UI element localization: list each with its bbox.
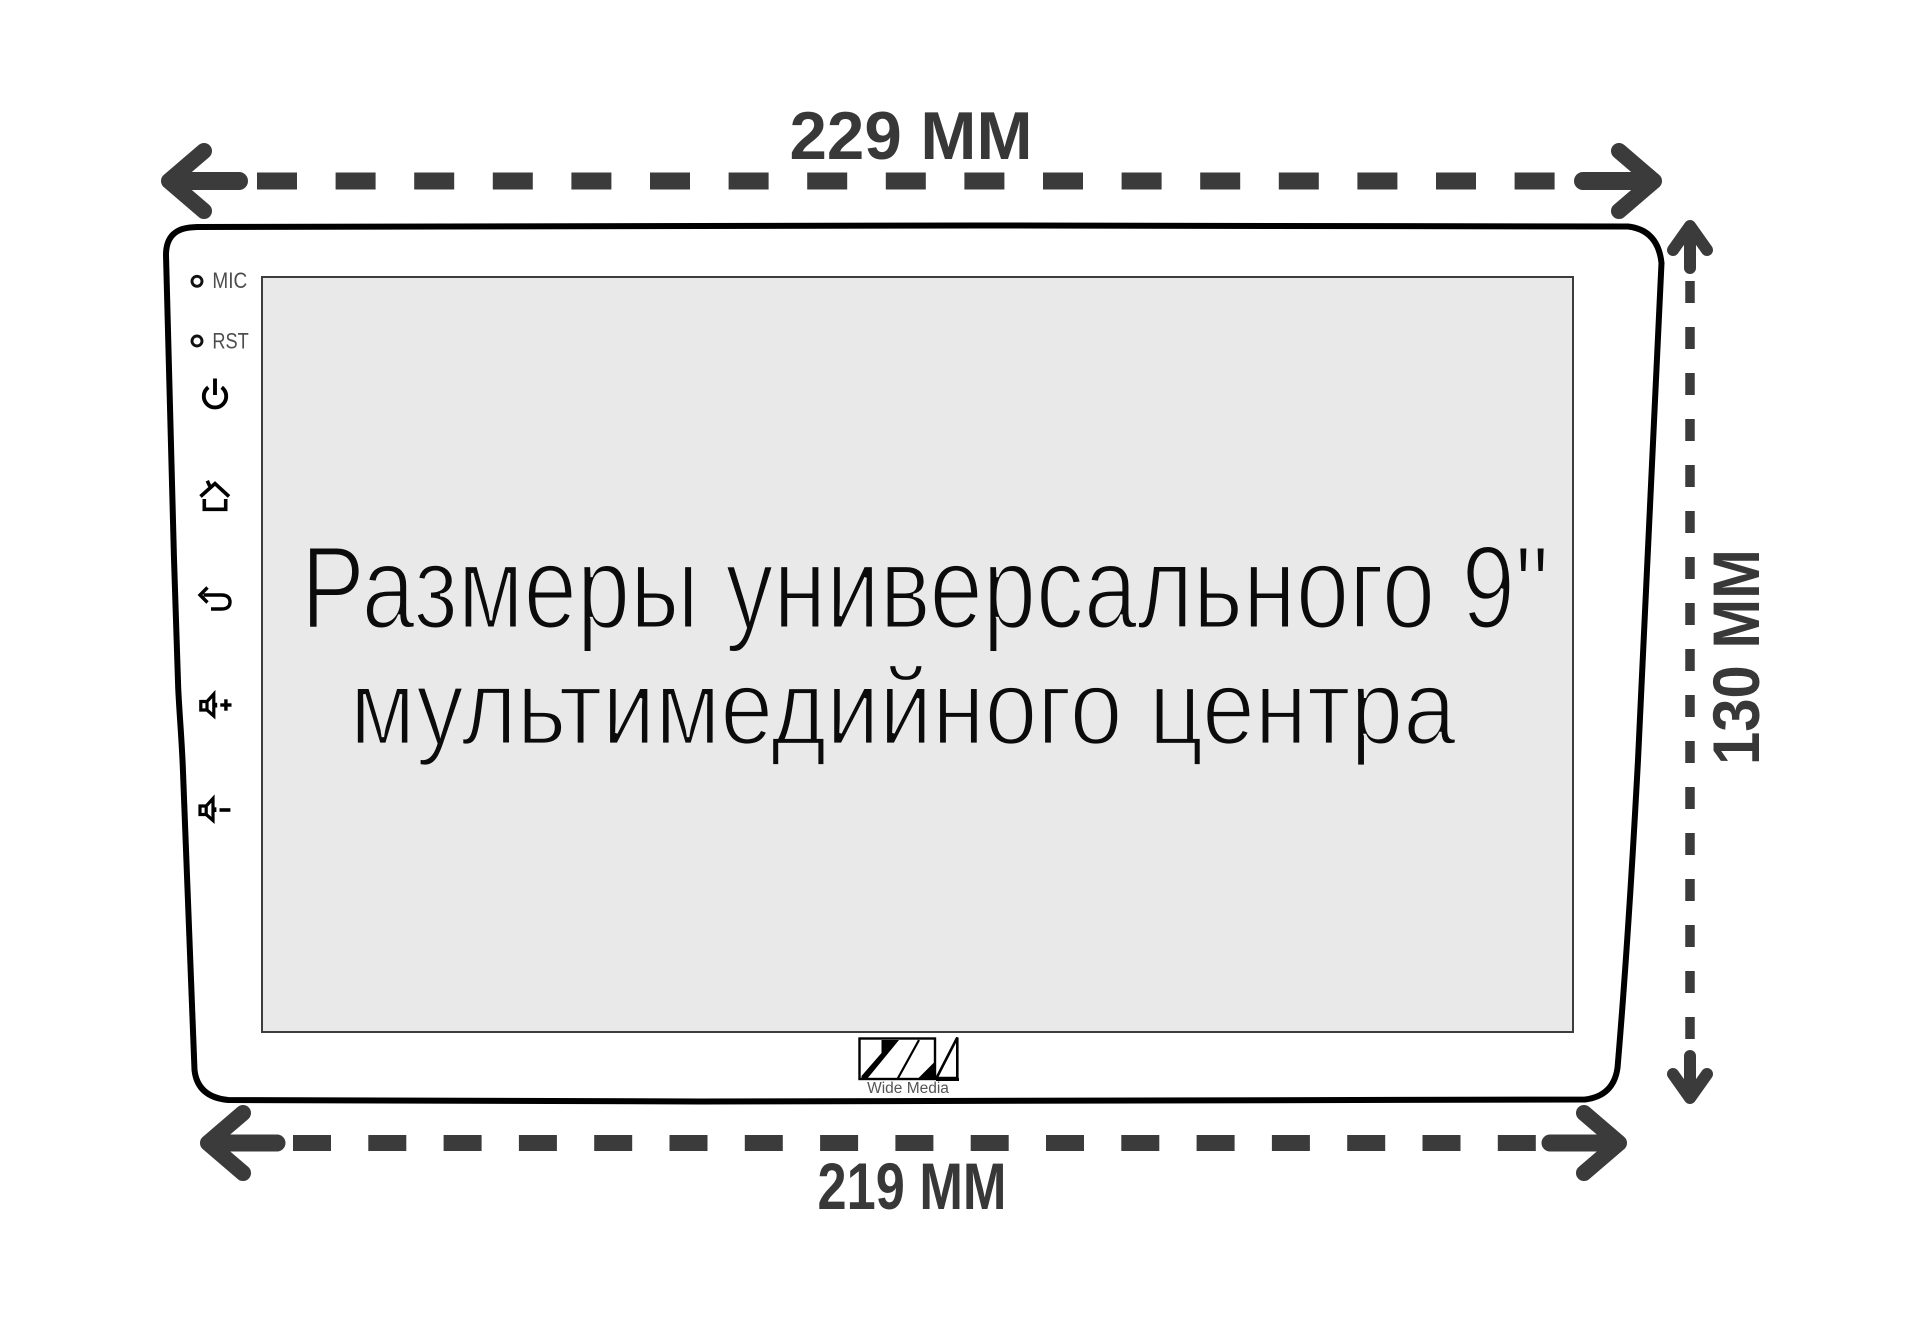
svg-text:RST: RST xyxy=(212,329,248,354)
svg-text:Размеры универсального 9": Размеры универсального 9" xyxy=(301,522,1549,654)
svg-text:130 MM: 130 MM xyxy=(1699,549,1773,765)
svg-text:MIC: MIC xyxy=(212,268,247,293)
svg-text:229 MM: 229 MM xyxy=(790,98,1033,174)
svg-text:219 MM: 219 MM xyxy=(818,1149,1007,1223)
svg-text:мультимедийного центра: мультимедийного центра xyxy=(350,647,1456,767)
svg-text:Wide Media: Wide Media xyxy=(867,1080,949,1097)
